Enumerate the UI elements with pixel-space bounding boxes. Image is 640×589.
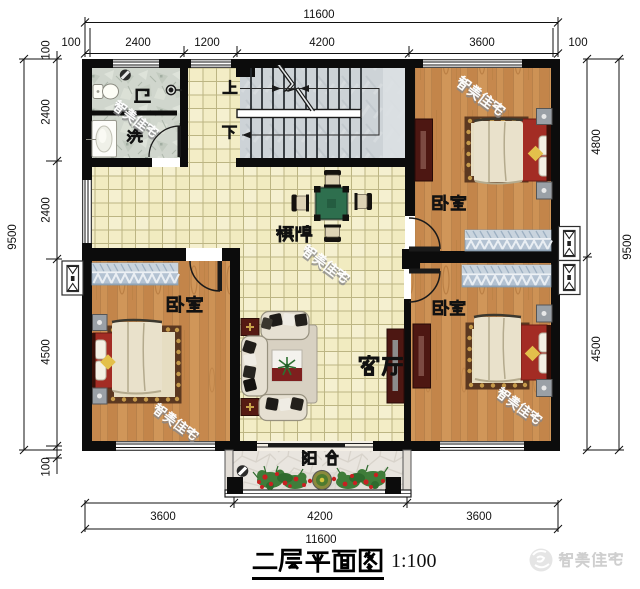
svg-text:3600: 3600 bbox=[469, 37, 495, 49]
svg-text:100: 100 bbox=[61, 37, 80, 49]
svg-text:4200: 4200 bbox=[307, 511, 333, 523]
svg-text:2400: 2400 bbox=[41, 197, 53, 223]
svg-text:1:100: 1:100 bbox=[391, 550, 437, 572]
svg-text:3600: 3600 bbox=[150, 511, 176, 523]
svg-text:3600: 3600 bbox=[466, 511, 492, 523]
svg-text:100: 100 bbox=[568, 37, 587, 49]
svg-text:4800: 4800 bbox=[591, 129, 603, 155]
svg-text:100: 100 bbox=[41, 40, 53, 59]
svg-text:1200: 1200 bbox=[194, 37, 220, 49]
svg-text:9500: 9500 bbox=[622, 234, 634, 260]
svg-text:4500: 4500 bbox=[591, 336, 603, 362]
svg-text:4500: 4500 bbox=[41, 339, 53, 365]
svg-text:2400: 2400 bbox=[125, 37, 151, 49]
svg-text:4200: 4200 bbox=[309, 37, 335, 49]
svg-text:11600: 11600 bbox=[305, 534, 336, 546]
svg-text:9500: 9500 bbox=[7, 224, 19, 250]
svg-text:11600: 11600 bbox=[303, 9, 334, 21]
svg-text:2400: 2400 bbox=[41, 99, 53, 125]
svg-text:100: 100 bbox=[41, 457, 53, 476]
